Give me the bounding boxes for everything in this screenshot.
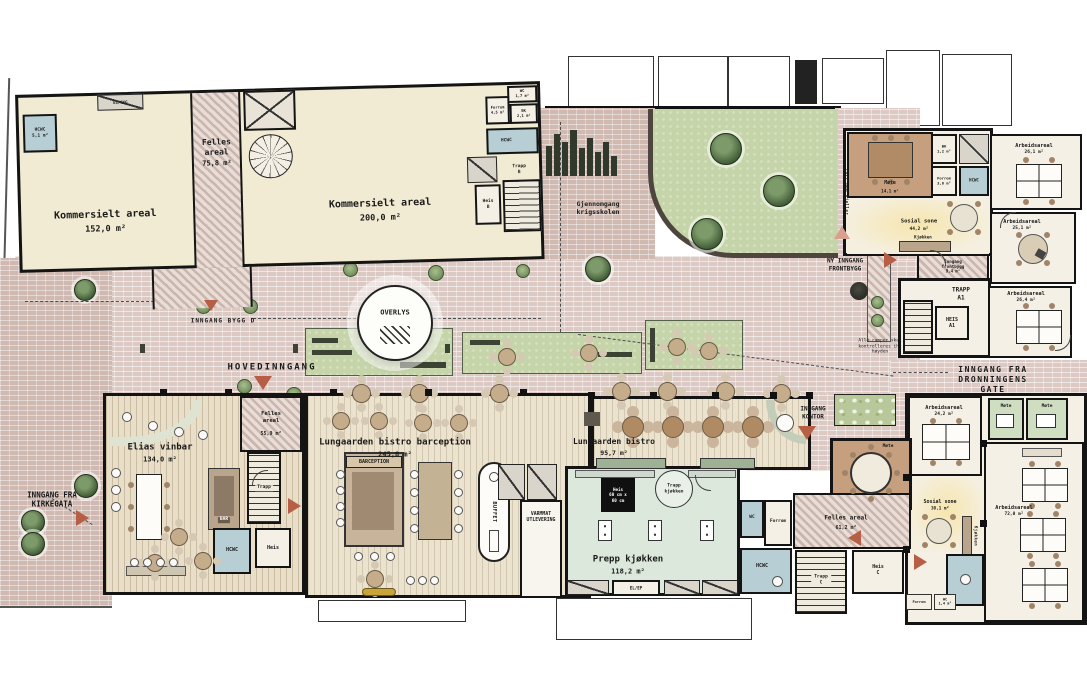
- garden: [648, 109, 838, 258]
- social-table: [926, 518, 952, 544]
- room-hcwc-vinbar: [213, 528, 251, 574]
- barception-counter-inner: [352, 472, 394, 530]
- kitchenette: [962, 516, 972, 556]
- small-desk: [1036, 414, 1056, 428]
- pillar: [712, 392, 719, 399]
- stool: [169, 558, 178, 567]
- booth-table: [776, 414, 794, 432]
- stool: [430, 576, 439, 585]
- table: [170, 528, 188, 546]
- chairs: [1042, 582, 1048, 588]
- stair-vinbar: [247, 452, 281, 524]
- stool: [336, 502, 345, 511]
- chairs: [888, 157, 894, 163]
- room-el: [97, 94, 143, 111]
- stool: [410, 488, 419, 497]
- toilet: [772, 576, 783, 587]
- service-box: [702, 580, 738, 595]
- pillar: [806, 392, 813, 399]
- chairs: [943, 439, 949, 445]
- neighbor-room: [658, 56, 728, 108]
- room-heis-a1: [935, 306, 969, 340]
- room-hcwc: [486, 127, 539, 154]
- overlys-skylight: [357, 285, 433, 361]
- kitchen-island: [700, 520, 714, 541]
- kitchen-counter: [575, 470, 655, 478]
- pillar: [588, 392, 595, 399]
- garden-tree: [691, 218, 723, 250]
- pillar: [770, 392, 777, 399]
- pillar: [425, 389, 432, 396]
- table: [366, 570, 384, 588]
- pillar: [903, 546, 910, 553]
- chairs: [1040, 532, 1046, 538]
- stool: [130, 558, 139, 567]
- pillar: [225, 389, 232, 396]
- entrance-marker: [848, 530, 861, 546]
- stool: [454, 470, 463, 479]
- chairs: [1036, 324, 1042, 330]
- room-wc: [740, 500, 764, 538]
- small-desk: [996, 414, 1014, 428]
- long-table: [136, 474, 162, 540]
- pillar: [650, 392, 657, 399]
- room-forrom-small: [906, 594, 932, 610]
- kirkegata-tree: [21, 532, 45, 556]
- trapp-kjokken: [655, 470, 693, 508]
- varmmat-corridor: [520, 500, 562, 598]
- bench: [312, 350, 352, 355]
- outdoor-table: [352, 384, 371, 403]
- building-frontbygg: Møte 14,1 m² BK 1,2 m² Forrom 3,6 m² HCW…: [843, 128, 993, 388]
- pillar: [520, 389, 527, 396]
- bar-counter-inner: [214, 476, 234, 516]
- stool: [454, 488, 463, 497]
- bar-stool: [111, 468, 121, 478]
- room-heis-b: [475, 184, 502, 225]
- dark-counter: [584, 412, 600, 426]
- chairs: [868, 470, 874, 476]
- building-kommersielt: Kommersielt areal 152,0 m² HCWC 5,1 m² E…: [5, 71, 556, 335]
- entrance-marker-kirkegata: [76, 510, 89, 526]
- stool: [336, 486, 345, 495]
- neighbor-room: [556, 598, 752, 640]
- room-wc-small: [934, 594, 956, 610]
- bistro-table: [622, 416, 644, 438]
- entrance-marker-kontor: [798, 426, 816, 440]
- kirkegata-tree: [74, 474, 98, 498]
- desk-cluster: [1022, 468, 1068, 502]
- outdoor-table: [700, 342, 718, 360]
- stool: [386, 552, 395, 561]
- stool: [143, 558, 152, 567]
- bar-stool: [198, 430, 208, 440]
- plaza-tree: [585, 256, 611, 282]
- room-wc: [507, 85, 537, 103]
- serving-counter: [700, 458, 755, 469]
- outdoor-table: [612, 382, 631, 401]
- pillar: [980, 520, 987, 527]
- stool: [336, 470, 345, 479]
- plaza-post: [445, 344, 450, 353]
- property-line-bottom: [0, 606, 112, 608]
- service-box: [498, 464, 525, 500]
- service-box: [664, 580, 700, 595]
- desk-cluster: [922, 424, 970, 460]
- pillar: [980, 440, 987, 447]
- chairs: [1036, 178, 1042, 184]
- room-bk: [509, 103, 538, 124]
- shelf: [1022, 448, 1062, 457]
- table: [414, 414, 432, 432]
- neighbor-room: [568, 56, 654, 108]
- stool: [406, 576, 415, 585]
- barception-sign: [346, 456, 402, 468]
- neighbor-room: [822, 58, 884, 104]
- bench: [598, 352, 632, 357]
- entrance-marker: [288, 498, 301, 514]
- kitchen-island: [598, 520, 612, 541]
- elevator-shaft: [243, 90, 296, 131]
- buffet-label: BUFFET: [491, 501, 497, 522]
- luft-label: Luft opp kjeller: [845, 169, 850, 216]
- stool: [410, 506, 419, 515]
- bench: [470, 340, 500, 345]
- stool: [418, 576, 427, 585]
- room-hcwc: [740, 548, 792, 594]
- chairs: [1042, 482, 1048, 488]
- pillar: [160, 389, 167, 396]
- desk-cluster: [1020, 518, 1066, 552]
- stool: [454, 524, 463, 533]
- kirkegata-tree: [21, 510, 45, 534]
- kitchen-island: [648, 520, 662, 541]
- stair-a1: [903, 300, 933, 354]
- bar-stool: [111, 485, 121, 495]
- stool: [156, 558, 165, 567]
- bistro-table: [742, 416, 764, 438]
- plaza-post: [140, 344, 145, 353]
- neighbor-room: [942, 54, 1012, 126]
- desk-cluster: [1016, 164, 1062, 198]
- neighbor-room: [318, 600, 466, 622]
- table: [370, 412, 388, 430]
- bench: [400, 362, 446, 368]
- bench: [312, 338, 338, 343]
- kjokken-label: Kjøkken: [974, 526, 979, 546]
- shaft: [959, 134, 989, 164]
- chairs: [146, 504, 152, 510]
- room-inngang-frontbygg: [917, 254, 989, 280]
- social-table: [950, 204, 978, 232]
- room-heis-vinbar: [255, 528, 291, 568]
- shaft: [467, 156, 498, 183]
- room-forrom: [485, 96, 510, 125]
- toilet: [960, 574, 971, 585]
- bistro-table: [702, 416, 724, 438]
- gold-bench: [362, 588, 396, 596]
- stool: [454, 506, 463, 515]
- ramp-marker: [834, 226, 850, 239]
- outdoor-table: [498, 348, 516, 366]
- service-box: [567, 580, 609, 595]
- table: [194, 552, 212, 570]
- entrance-marker: [914, 554, 927, 570]
- stair-c: [795, 550, 847, 614]
- table: [332, 412, 350, 430]
- bar-stool: [122, 412, 132, 422]
- entrance-marker-hovedinngang: [254, 376, 272, 390]
- bygg-d-vestibule: [152, 267, 253, 310]
- entrance-marker-bygg-d: [204, 300, 218, 311]
- chairs: [936, 528, 942, 534]
- neighbor-shaft: [795, 60, 817, 104]
- garden-tree: [763, 175, 795, 207]
- room-felles-vinbar: [240, 396, 302, 452]
- communal-table: [418, 462, 452, 540]
- garden-tree: [710, 133, 742, 165]
- service-box: [527, 464, 557, 500]
- entrance-marker-frontbygg: [884, 252, 897, 268]
- outdoor-table: [668, 338, 686, 356]
- flower-bed: [834, 394, 896, 426]
- stool: [410, 524, 419, 533]
- pillar: [330, 389, 337, 396]
- serving-counter: [596, 458, 666, 469]
- room-hcwc: [23, 114, 58, 153]
- buffet-fixture: [489, 530, 499, 552]
- heis-kjokken: [601, 478, 635, 512]
- room-hcwc: [959, 166, 989, 196]
- outdoor-table: [490, 384, 509, 403]
- bar-stool: [148, 421, 158, 431]
- glass-symbol: [380, 326, 410, 344]
- table: [450, 414, 468, 432]
- krigsskolen-skyline: [546, 128, 620, 176]
- outdoor-table: [580, 344, 598, 362]
- outdoor-table: [658, 382, 677, 401]
- neighbor-room: [728, 56, 790, 108]
- bistro-table: [662, 416, 684, 438]
- chairs: [1030, 246, 1036, 252]
- kitchenette: [899, 241, 951, 252]
- round-meeting-table: [850, 452, 892, 494]
- stool: [336, 518, 345, 527]
- room-bk: [931, 134, 957, 164]
- bush: [237, 379, 252, 394]
- bar-stool: [111, 502, 121, 512]
- room-forrom: [931, 166, 957, 196]
- stair-b: [502, 179, 541, 232]
- stool: [410, 470, 419, 479]
- pillar: [903, 474, 910, 481]
- chairs: [961, 215, 967, 221]
- room-heis-c: [852, 550, 904, 594]
- felles-corridor: [190, 92, 245, 268]
- stool: [354, 552, 363, 561]
- round-work-table: [1018, 234, 1048, 264]
- stool: [370, 552, 379, 561]
- walking-path: [560, 122, 561, 332]
- room-el-ep: [612, 580, 660, 596]
- bar-stool: [174, 427, 184, 437]
- floor-plan: Gjennomgang krigsskolen Kommersie: [0, 0, 1087, 691]
- desk-cluster: [1022, 568, 1068, 602]
- plaza-post: [293, 344, 298, 353]
- meeting-table: [868, 142, 913, 178]
- room-forrom: [764, 500, 792, 546]
